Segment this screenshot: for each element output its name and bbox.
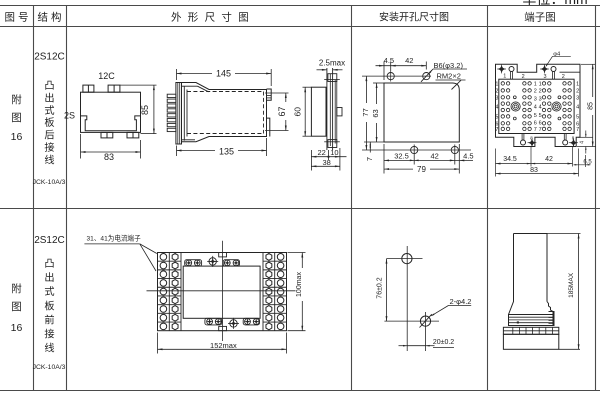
svg-text:1: 1 (495, 82, 498, 88)
svg-text:32.5: 32.5 (394, 152, 409, 161)
svg-text:85: 85 (140, 105, 150, 115)
svg-text:前: 前 (44, 313, 54, 326)
svg-text:3: 3 (495, 96, 498, 102)
svg-text:附: 附 (11, 93, 22, 106)
svg-text:7: 7 (495, 127, 498, 133)
svg-text:5: 5 (534, 113, 537, 119)
svg-text:1: 1 (539, 82, 542, 88)
svg-text:22: 22 (318, 148, 326, 157)
svg-text:式: 式 (44, 285, 54, 298)
svg-text:83: 83 (530, 167, 538, 174)
svg-text:外形尺寸图: 外形尺寸图 (171, 11, 255, 24)
svg-text:2S12C: 2S12C (34, 52, 65, 63)
svg-text:板: 板 (44, 299, 54, 312)
svg-text:7: 7 (534, 127, 537, 133)
svg-text:79: 79 (417, 165, 426, 174)
svg-text:3: 3 (576, 96, 579, 102)
svg-text:38: 38 (323, 158, 331, 167)
svg-text:2S: 2S (64, 111, 75, 121)
svg-text:34.5: 34.5 (503, 156, 517, 163)
svg-text:4: 4 (539, 105, 542, 111)
svg-text:4: 4 (534, 105, 537, 111)
svg-text:端子图: 端子图 (524, 11, 556, 24)
svg-text:板: 板 (44, 116, 54, 129)
svg-text:6: 6 (534, 121, 537, 127)
svg-text:6: 6 (539, 121, 542, 127)
svg-text:2: 2 (539, 89, 542, 95)
svg-text:出: 出 (44, 91, 54, 104)
svg-text:12C: 12C (98, 71, 115, 81)
svg-text:76±0.2: 76±0.2 (376, 277, 383, 298)
svg-text:63: 63 (371, 109, 380, 117)
svg-text:5: 5 (576, 115, 579, 121)
svg-text:式: 式 (44, 104, 54, 117)
svg-text:4: 4 (576, 105, 579, 111)
svg-text:接: 接 (44, 328, 54, 341)
svg-text:4.5: 4.5 (463, 152, 473, 161)
svg-text:图 号: 图 号 (5, 12, 29, 24)
svg-text:152max: 152max (210, 341, 237, 350)
svg-text:2: 2 (495, 89, 498, 95)
svg-text:5: 5 (539, 113, 542, 119)
svg-text:16: 16 (11, 322, 23, 334)
svg-text:1: 1 (576, 82, 579, 88)
svg-text:42: 42 (545, 156, 553, 163)
svg-text:附: 附 (11, 282, 22, 295)
svg-text:B6(φ3.2): B6(φ3.2) (434, 61, 464, 70)
svg-text:42: 42 (405, 56, 413, 65)
svg-text:16: 16 (11, 131, 23, 143)
svg-text:185MAX: 185MAX (568, 272, 575, 298)
svg-text:85: 85 (587, 102, 594, 110)
svg-text:后: 后 (44, 130, 54, 142)
svg-text:2-φ4.2: 2-φ4.2 (450, 297, 472, 306)
svg-text:83: 83 (104, 152, 114, 162)
svg-text:5: 5 (495, 115, 498, 121)
svg-text:2: 2 (534, 89, 537, 95)
svg-text:6.5: 6.5 (583, 160, 592, 166)
svg-text:接: 接 (44, 141, 54, 154)
svg-text:JCK-10A/3: JCK-10A/3 (33, 179, 66, 186)
svg-text:135: 135 (219, 146, 234, 156)
svg-text:出: 出 (44, 271, 54, 284)
svg-text:安装开孔尺寸图: 安装开孔尺寸图 (379, 11, 449, 24)
svg-text:1: 1 (503, 74, 506, 80)
svg-text:42: 42 (431, 152, 439, 161)
svg-text:4: 4 (580, 141, 586, 144)
svg-text:2: 2 (576, 89, 579, 95)
svg-text:2S12C: 2S12C (34, 235, 65, 246)
svg-text:20±0.2: 20±0.2 (433, 339, 454, 346)
svg-text:3: 3 (534, 96, 537, 102)
svg-text:结 构: 结 构 (38, 11, 62, 24)
svg-text:3: 3 (539, 96, 542, 102)
svg-text:100max: 100max (296, 272, 303, 297)
svg-text:JCK-10A/3: JCK-10A/3 (33, 364, 66, 371)
svg-text:77: 77 (361, 108, 370, 116)
svg-text:10: 10 (330, 148, 338, 157)
svg-text:1: 1 (534, 82, 537, 88)
svg-text:RM2×2: RM2×2 (437, 72, 461, 81)
svg-text:图: 图 (11, 301, 22, 313)
svg-text:线: 线 (44, 342, 54, 355)
svg-text:7: 7 (365, 157, 374, 161)
svg-text:31、41为电流端子: 31、41为电流端子 (87, 234, 142, 243)
svg-text:线: 线 (44, 153, 54, 166)
svg-text:60: 60 (293, 107, 303, 117)
svg-text:145: 145 (216, 69, 231, 79)
svg-text:图: 图 (11, 112, 22, 124)
svg-text:7: 7 (539, 127, 542, 133)
svg-text:7: 7 (576, 127, 579, 133)
svg-text:2.5max: 2.5max (319, 59, 345, 68)
svg-text:凸: 凸 (44, 258, 54, 270)
svg-text:4.5: 4.5 (384, 56, 394, 65)
svg-text:67: 67 (277, 106, 287, 116)
svg-text:凸: 凸 (44, 80, 54, 92)
svg-text:4: 4 (495, 105, 498, 111)
